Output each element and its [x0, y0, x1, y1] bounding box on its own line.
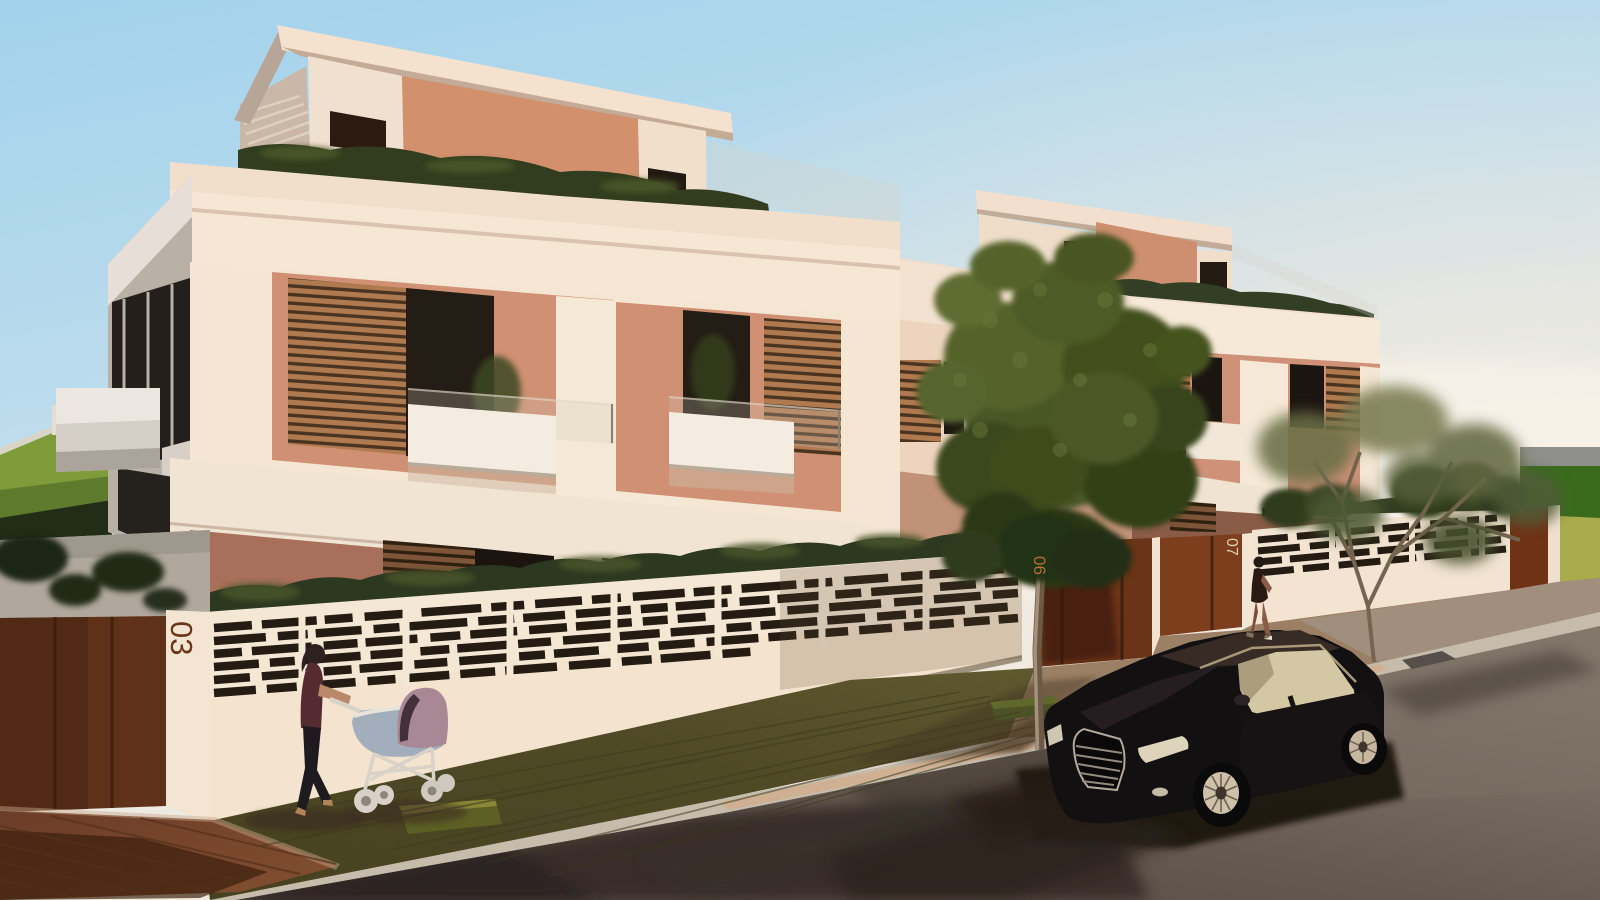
svg-text:07: 07	[1223, 538, 1240, 556]
svg-text:06: 06	[1030, 556, 1049, 575]
svg-text:03: 03	[164, 621, 199, 655]
